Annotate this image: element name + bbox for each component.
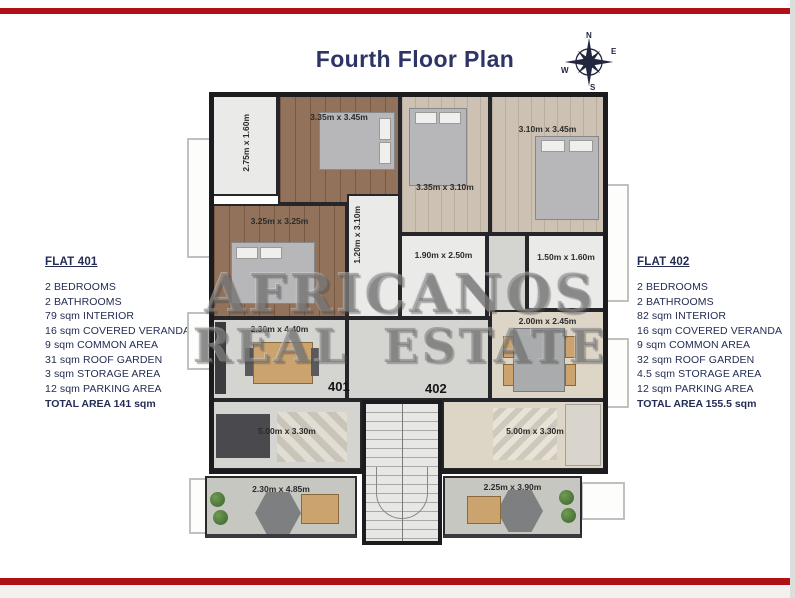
flat-402-spec-common: 9 sqm COMMON AREA bbox=[637, 338, 793, 353]
compass-east-label: E bbox=[611, 47, 616, 56]
staircase bbox=[362, 400, 442, 545]
plant-veranda-401 bbox=[213, 510, 228, 525]
dim-kitchen-401: 2.30m x 4.40m bbox=[212, 324, 347, 334]
chair-401 bbox=[311, 348, 319, 376]
dim-bedroom2-402: 3.10m x 3.45m bbox=[490, 124, 605, 134]
pillow bbox=[260, 247, 282, 259]
slide-bottom-border bbox=[0, 578, 795, 585]
compass-south-label: S bbox=[590, 83, 595, 92]
exterior-ledge-right-upper bbox=[603, 184, 629, 302]
plant-veranda-402 bbox=[561, 508, 576, 523]
chair-402 bbox=[503, 364, 514, 386]
exterior-ledge-right-lower bbox=[601, 338, 629, 408]
dim-wc-402: 1.50m x 1.60m bbox=[527, 252, 605, 262]
bed-bedroom1-402 bbox=[409, 108, 467, 186]
room-bathroom-402 bbox=[400, 234, 487, 318]
rug-living-401 bbox=[277, 412, 347, 462]
dim-bedroom2-401: 3.25m x 3.25m bbox=[212, 216, 347, 226]
pillow bbox=[236, 247, 258, 259]
room-corridor-402 bbox=[487, 234, 527, 318]
dining-table-402 bbox=[513, 328, 565, 392]
dim-bedroom1-402: 3.35m x 3.10m bbox=[400, 182, 490, 192]
compass-north-label: N bbox=[586, 31, 592, 40]
chair-402 bbox=[565, 364, 576, 386]
unit-label-402: 402 bbox=[425, 381, 447, 396]
flat-402-spec-interior: 82 sqm INTERIOR bbox=[637, 309, 793, 324]
flat-402-spec-bathrooms: 2 BATHROOMS bbox=[637, 295, 793, 310]
chair-402 bbox=[503, 336, 514, 358]
flat-402-title: FLAT 402 bbox=[637, 256, 793, 268]
exterior-steps-bottom-right bbox=[581, 482, 625, 520]
dim-bedroom1-401: 3.35m x 3.45m bbox=[278, 112, 400, 122]
sofa-living-401 bbox=[216, 414, 270, 458]
dim-living-401: 5.00m x 3.30m bbox=[212, 426, 362, 436]
compass-west-label: W bbox=[561, 66, 569, 75]
chair-402 bbox=[565, 336, 576, 358]
flat-402-spec-storage: 4.5 sqm STORAGE AREA bbox=[637, 367, 793, 382]
slide-bottom-margin bbox=[0, 585, 795, 598]
page-title: Fourth Floor Plan bbox=[240, 46, 590, 73]
unit-label-401: 401 bbox=[328, 379, 350, 394]
pillow bbox=[541, 140, 565, 152]
plant-veranda-401 bbox=[210, 492, 225, 507]
flat-402-spec-bedrooms: 2 BEDROOMS bbox=[637, 280, 793, 295]
dining-table-401 bbox=[253, 342, 313, 384]
bed-bedroom2-402 bbox=[535, 136, 599, 220]
staircase-arc bbox=[376, 467, 428, 519]
exterior-ledge-left-lower bbox=[187, 312, 211, 370]
flat-402-spec-parking: 12 sqm PARKING AREA bbox=[637, 382, 793, 397]
chair-401 bbox=[245, 348, 253, 376]
pillow bbox=[379, 142, 391, 164]
pillow bbox=[415, 112, 437, 124]
floor-plan: 2.75m x 1.60m 3.35m x 3.45m 3.35m x 3.10… bbox=[197, 92, 627, 554]
slide-top-border bbox=[0, 8, 795, 14]
flat-402-total-area: TOTAL AREA 155.5 sqm bbox=[637, 397, 793, 412]
compass-star bbox=[561, 34, 617, 90]
dim-dining-402: 2.00m x 2.45m bbox=[490, 316, 605, 326]
dim-bathroom1-401: 2.75m x 1.60m bbox=[241, 114, 251, 172]
table-veranda-401 bbox=[301, 494, 339, 524]
pillow bbox=[439, 112, 461, 124]
pillow bbox=[569, 140, 593, 152]
compass-rose-icon: N E S W bbox=[561, 34, 617, 90]
flat-402-spec-roof-garden: 32 sqm ROOF GARDEN bbox=[637, 353, 793, 368]
flat-402-info-panel: FLAT 402 2 BEDROOMS 2 BATHROOMS 82 sqm I… bbox=[637, 256, 793, 412]
dim-veranda-401: 2.30m x 4.85m bbox=[205, 484, 357, 494]
room-common-corridor bbox=[347, 318, 490, 400]
dim-bathroom-402: 1.90m x 2.50m bbox=[400, 250, 487, 260]
exterior-ledge-left-upper bbox=[187, 138, 211, 258]
flat-402-spec-veranda: 16 sqm COVERED VERANDA bbox=[637, 324, 793, 339]
room-wc-402 bbox=[527, 234, 605, 310]
dim-living-402: 5.00m x 3.30m bbox=[465, 426, 605, 436]
plant-veranda-402 bbox=[559, 490, 574, 505]
dim-veranda-402: 2.25m x 3.90m bbox=[443, 482, 582, 492]
table-veranda-402 bbox=[467, 496, 501, 524]
dim-hallway-401: 1.20m x 3.10m bbox=[352, 206, 362, 264]
bed-bedroom2-401 bbox=[231, 242, 315, 304]
